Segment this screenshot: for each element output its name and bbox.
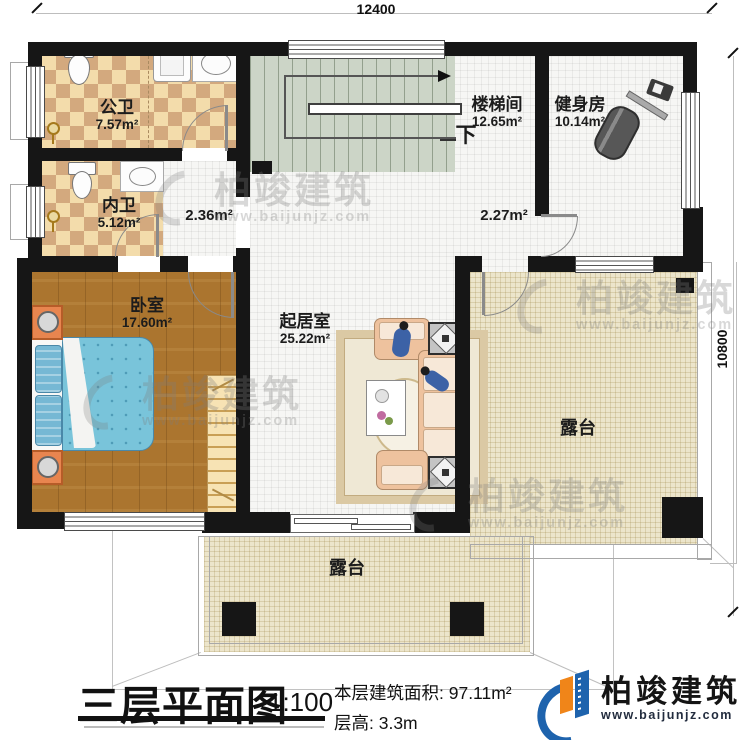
armchair [376,450,428,490]
wall-segment [28,136,42,186]
room-label-bedroom: 卧室 17.60m² [122,296,172,330]
wall-segment [236,161,250,197]
room-label-living-room: 起居室 25.22m² [280,312,331,346]
room-label-terrace-right: 露台 [560,418,596,438]
wall-segment [28,148,182,161]
wall-segment [28,42,42,66]
brand-logo-icon [538,666,598,736]
room-area: 12.65m² [472,114,523,129]
area-annotation: 2.27m² [480,208,528,225]
column [676,278,694,293]
bath-divider-line [148,56,150,148]
wall-segment [535,56,549,216]
dimension-width-label: 12400 [336,1,416,17]
title-underline-thin [84,726,324,728]
apron-line [710,563,736,564]
lamp-icon [37,456,59,478]
wall-segment [413,512,470,533]
room-area: 10.14m² [555,114,606,129]
wall-segment [652,256,703,272]
door-leaf [231,272,234,318]
floor-height-text: 层高: 3.3m [334,708,512,738]
floor-drain-icon [47,210,60,223]
sliding-door [290,514,415,533]
stairs-path-line [284,75,286,139]
toilet-bowl [68,54,90,85]
flower-icon [385,417,393,425]
treadmill-console [646,78,674,101]
room-label-stair-hall: 楼梯间 12.65m² [472,95,523,129]
wall-segment [202,512,290,533]
room-name: 楼梯间 [472,95,523,114]
wall-segment [160,256,188,272]
pillow [35,395,62,446]
window [26,66,45,138]
wall-segment [28,256,118,272]
wardrobe-rod [212,378,234,391]
brand-website: www.baijunjz.com [601,709,733,722]
pillow [35,345,62,393]
window [681,92,700,209]
brand-name: 柏竣建筑 [601,676,741,707]
nightstand [31,450,63,485]
window [575,256,654,273]
sofa-cushion [381,465,423,485]
wall-segment [17,512,66,529]
logo-orange-block [560,676,573,714]
room-name: 卧室 [122,296,172,315]
logo-blue-block [575,670,589,719]
toilet-bowl [72,171,92,199]
plate-icon [375,389,389,403]
room-label-gym: 健身房 10.14m² [555,95,606,129]
column [222,602,256,636]
stairs-direction-arrow [438,70,451,82]
door-leaf [541,214,577,217]
nightstand [31,305,63,340]
floor-plan-canvas: 12400 10800 下 [0,0,750,740]
room-name: 起居室 [280,312,331,331]
logo-windows [578,677,581,710]
plan-scale: 1:100 [268,687,333,718]
sliding-door-panel [351,524,411,530]
room-area: 17.60m² [122,315,172,330]
door-leaf [225,105,228,151]
dimension-tick [31,2,42,13]
floor-info: 本层建筑面积: 97.11m² 层高: 3.3m [334,678,512,738]
room-label-public-bath: 公卫 7.57m² [96,98,139,132]
wall-segment [683,56,697,92]
stairs-path-line [284,137,456,139]
window [26,186,45,238]
apron-line [736,262,737,564]
stairs-path-line [284,75,442,77]
door-leaf [156,214,159,257]
room-name: 公卫 [96,98,139,117]
room-label-ensuite-bath: 内卫 5.12m² [98,196,141,230]
wall-segment [252,161,272,174]
dimension-height-label: 10800 [714,319,730,379]
wall-segment [17,258,32,514]
room-name: 健身房 [555,95,606,114]
window [64,512,205,531]
wardrobe-rod [212,488,234,501]
window [288,40,445,59]
stairs-handrail [308,103,462,115]
plan-title: 三层平面图 [78,672,288,732]
floor-area-text: 本层建筑面积: 97.11m² [334,678,512,708]
column [662,497,703,538]
sliding-door-panel [294,518,358,524]
column [450,602,484,636]
toilet-icon [68,162,96,199]
wall-segment [236,42,250,148]
wall-segment [227,148,250,161]
dimension-line-right [733,56,734,616]
room-label-terrace-bottom: 露台 [329,558,365,578]
room-area: 7.57m² [96,117,139,132]
room-area: 5.12m² [98,215,141,230]
coffee-table [366,380,406,436]
treadmill-icon [598,80,676,158]
area-annotation: 2.36m² [185,208,233,225]
floor-drain-icon [47,122,60,135]
dimension-tick [706,2,717,13]
wall-segment [528,256,575,272]
room-area: 25.22m² [280,331,331,346]
room-name: 内卫 [98,196,141,215]
sink-counter [120,161,164,192]
treadmill-screen [652,83,664,95]
sink-basin-icon [129,167,156,186]
wall-segment [236,256,250,514]
wall-segment [443,42,697,56]
stairs-down-tick [440,139,456,141]
wall-segment [455,256,470,514]
wardrobe [207,375,239,517]
door-leaf [482,272,485,315]
lamp-icon [37,311,59,333]
